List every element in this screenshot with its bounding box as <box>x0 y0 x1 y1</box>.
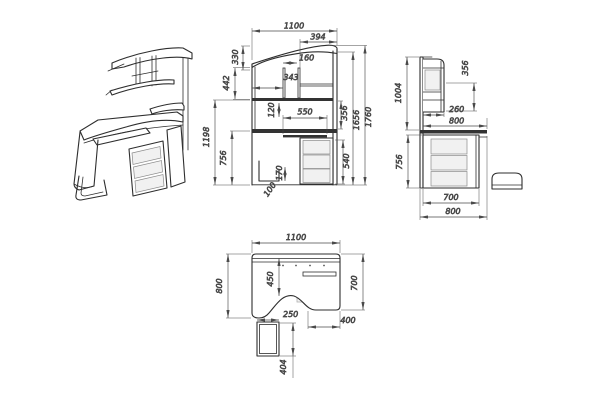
front-view: 1100 394 160 343 550 120 330 442 <box>202 22 373 199</box>
dim-label: 120 <box>267 102 276 117</box>
dim-label: 1656 <box>352 110 361 130</box>
dim-label: 1198 <box>202 127 211 147</box>
dim-label: 800 <box>445 207 460 216</box>
dim-label: 1760 <box>364 107 373 127</box>
dim-label: 330 <box>231 49 240 64</box>
front-roof <box>252 45 337 67</box>
dim-label: 400 <box>340 316 355 325</box>
side-view: 356 1004 260 800 756 700 800 <box>394 57 522 220</box>
top-view: 1100 800 450 700 250 400 404 <box>215 233 365 378</box>
dim-label: 1100 <box>284 22 304 31</box>
dim-label: 404 <box>279 359 288 374</box>
dim-label: 800 <box>449 117 464 126</box>
dim-label: 1100 <box>286 233 306 242</box>
dim-label: 756 <box>395 154 404 169</box>
technical-drawing: 1100 394 160 343 550 120 330 442 <box>0 0 600 400</box>
dim-label: 250 <box>283 310 298 319</box>
dim-label: 343 <box>283 73 298 82</box>
top-cpu-stand <box>257 322 279 356</box>
dim-label: 700 <box>350 275 359 290</box>
dim-label: 160 <box>299 54 314 63</box>
dim-label: 356 <box>461 60 470 75</box>
side-desktop <box>420 130 487 134</box>
front-desktop <box>252 129 337 133</box>
dim-label: 260 <box>449 105 464 114</box>
dim-label: 356 <box>340 105 349 120</box>
drawing-canvas: 1100 394 160 343 550 120 330 442 <box>0 0 600 400</box>
dim-label: 442 <box>222 75 231 90</box>
dim-label: 550 <box>297 108 312 117</box>
isometric-view <box>74 48 192 200</box>
dim-label: 800 <box>215 278 224 293</box>
front-hutch-shelf <box>252 98 333 101</box>
dim-label: 1004 <box>394 83 403 103</box>
dim-label: 700 <box>443 193 458 202</box>
front-keyboard-tray <box>283 135 327 137</box>
dim-label: 100 <box>262 181 278 199</box>
dim-label: 540 <box>342 153 351 168</box>
top-hutch-rail <box>303 272 336 276</box>
dim-label: 450 <box>266 271 275 286</box>
side-cpu-stand <box>492 173 522 189</box>
front-dimensions: 1100 394 160 343 550 120 330 442 <box>202 22 373 199</box>
dim-label: 170 <box>275 165 284 180</box>
dim-label: 394 <box>310 33 325 42</box>
dim-label: 756 <box>219 150 228 165</box>
